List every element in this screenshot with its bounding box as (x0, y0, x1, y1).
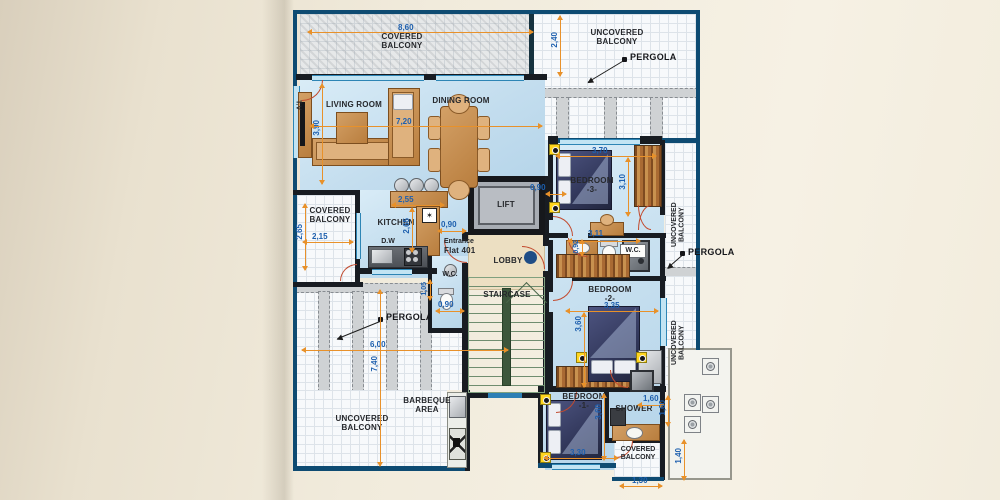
dimline (322, 84, 323, 184)
dim-wc-depth: 0,92 (573, 240, 580, 254)
dimline (430, 280, 431, 300)
dimline (438, 231, 466, 232)
pergola-beam (386, 291, 398, 392)
stove-burner (413, 257, 418, 262)
label-living-room: LIVING ROOM (324, 100, 384, 109)
label-entrance: Entrance (444, 238, 484, 246)
label-flat-number: Flat 401 (444, 246, 484, 255)
dim-kitchen-width: 2,55 (398, 196, 414, 204)
label-lobby: LOBBY (486, 256, 530, 265)
dining-chair (428, 148, 441, 172)
dining-chair (448, 180, 470, 200)
kitchen-sink (371, 249, 393, 264)
dimline (546, 194, 566, 195)
dim-shower-width: 1,60 (643, 395, 659, 403)
dimline (303, 242, 353, 243)
window-bedroom3-top (560, 139, 640, 145)
label-uncovered-balcony-bottom: UNCOVERED BALCONY (314, 414, 410, 432)
label-staircase: STAIRCASE (478, 290, 536, 299)
dimline (392, 205, 444, 206)
sofa-cushions (316, 142, 394, 160)
window-bedroom2-right (660, 298, 667, 346)
coffee-table (336, 112, 368, 144)
window-bedroom1-bottom (552, 464, 600, 470)
dim-wc-small-depth: 1,05 (421, 282, 428, 296)
dim-bed3-depth: 3,10 (619, 174, 627, 190)
wall-exterior-right (696, 10, 700, 350)
label-lift: LIFT (486, 200, 526, 209)
bed3-wardrobe (634, 145, 662, 207)
pergola-beam (604, 97, 617, 144)
dimline (582, 240, 583, 256)
dim-balcony-left-width: 2,15 (312, 233, 328, 241)
dimline (412, 208, 413, 252)
dimline (604, 394, 605, 460)
dim-bed2-width: 3,35 (604, 302, 620, 310)
page-shadow (262, 0, 294, 500)
wall-jamb (640, 136, 662, 144)
bed3-chair (600, 214, 614, 226)
label-uncovered-balcony-right-lower: UNCOVERED BALCONY (671, 300, 686, 386)
wall-balcony-left-top (293, 190, 359, 195)
label-bedroom3: BEDROOM -3- (566, 176, 618, 194)
utility-unit-icon (684, 416, 701, 433)
dim-shower-depth: 1,60 (659, 400, 667, 416)
bed2-wardrobe-top (556, 254, 630, 278)
dim-wc-width: 3,11 (588, 230, 603, 238)
pergola-beam (352, 291, 364, 392)
label-pergola-top: PERGOLA (630, 52, 677, 62)
label-dining-room: DINING ROOM (430, 96, 492, 105)
dimline (566, 311, 658, 312)
dim-lift-right: 0,90 (530, 184, 546, 192)
window-living-top (312, 75, 424, 81)
wall-wc-right (660, 233, 665, 298)
label-wc-small: W.C. (436, 271, 464, 279)
dimline (668, 396, 669, 426)
dining-table (440, 106, 478, 188)
dining-chair (477, 116, 490, 140)
utility-unit-icon (684, 394, 701, 411)
spotlight-icon (540, 394, 551, 405)
label-dw: D.W (378, 238, 398, 246)
label-covered-balcony-left: COVERED BALCONY (302, 206, 358, 224)
dim-bed1-depth: 3,60 (595, 404, 603, 420)
dim-balcony-left-depth: 2,65 (296, 224, 304, 240)
dim-bed1-width: 3,30 (570, 449, 586, 457)
shower-drain-icon (638, 258, 644, 264)
dimline (620, 486, 662, 487)
dimline (308, 32, 533, 33)
dimline (560, 16, 561, 76)
label-covered-balcony-br: COVERED BALCONY (614, 446, 662, 461)
stove-burner (406, 257, 411, 262)
dim-living-width: 7,20 (396, 118, 412, 126)
dimline (556, 156, 656, 157)
shower-sink (626, 427, 643, 439)
utility-unit-icon (702, 358, 719, 375)
label-pergola-right: PERGOLA (688, 247, 735, 257)
dim-wc-small-width: 0,90 (438, 301, 454, 309)
spotlight-icon (549, 202, 560, 213)
dim-living-height: 3,90 (313, 120, 321, 136)
dimline (310, 126, 542, 127)
shower-tray (630, 370, 654, 392)
dim-bed2-depth: 3,60 (575, 316, 583, 332)
dim-pergola-width: 6,00 (370, 341, 386, 349)
wall-balcony-divider (529, 14, 534, 76)
dim-lift-left: 0,90 (441, 221, 457, 229)
label-barbeque-area: BARBEQUE AREA (398, 396, 456, 414)
sofa-pillow (393, 94, 413, 110)
dimline (436, 311, 464, 312)
dimline (380, 290, 381, 466)
utility-unit-icon (702, 396, 719, 413)
dimline (684, 440, 685, 480)
dimline (584, 313, 585, 387)
floor-plan-screenshot: { "rooms": { "living": "LIVING ROOM", "d… (0, 0, 1000, 500)
dimline (628, 158, 629, 216)
dining-chair (428, 116, 441, 140)
dim-top-depth: 2,40 (551, 32, 559, 48)
dim-kitchen-depth: 2,65 (403, 218, 411, 234)
dining-chair (477, 148, 490, 172)
dim-terrace-depth: 7,40 (371, 356, 379, 372)
label-tv: T.V (294, 100, 302, 110)
kitchen-star-icon: ✶ (422, 208, 437, 223)
label-uncovered-balcony-top: UNCOVERED BALCONY (572, 28, 662, 46)
bed1-pillow (548, 430, 561, 454)
wall-exterior-top (293, 10, 700, 14)
barbeque-grill-center (453, 438, 460, 447)
window-dining-top (436, 75, 524, 81)
dim-cb-br-width: 1,30 (632, 477, 648, 485)
dimline (302, 350, 508, 351)
spotlight-icon (636, 352, 647, 363)
label-covered-balcony-top: COVERED BALCONY (352, 32, 452, 50)
wall-balcony-left-bottom (293, 282, 363, 287)
spotlight-icon (576, 352, 587, 363)
dim-cb-br-depth: 1,40 (675, 448, 683, 464)
pergola-beam (318, 291, 330, 392)
window-kitchen-bottom (372, 269, 412, 275)
dim-bed3-width: 3,70 (592, 147, 608, 155)
dim-top-width: 8,60 (398, 24, 414, 32)
wall-hall-bedroom2 (548, 312, 553, 392)
dimline (305, 204, 306, 270)
label-pergola-left: PERGOLA (386, 312, 433, 322)
